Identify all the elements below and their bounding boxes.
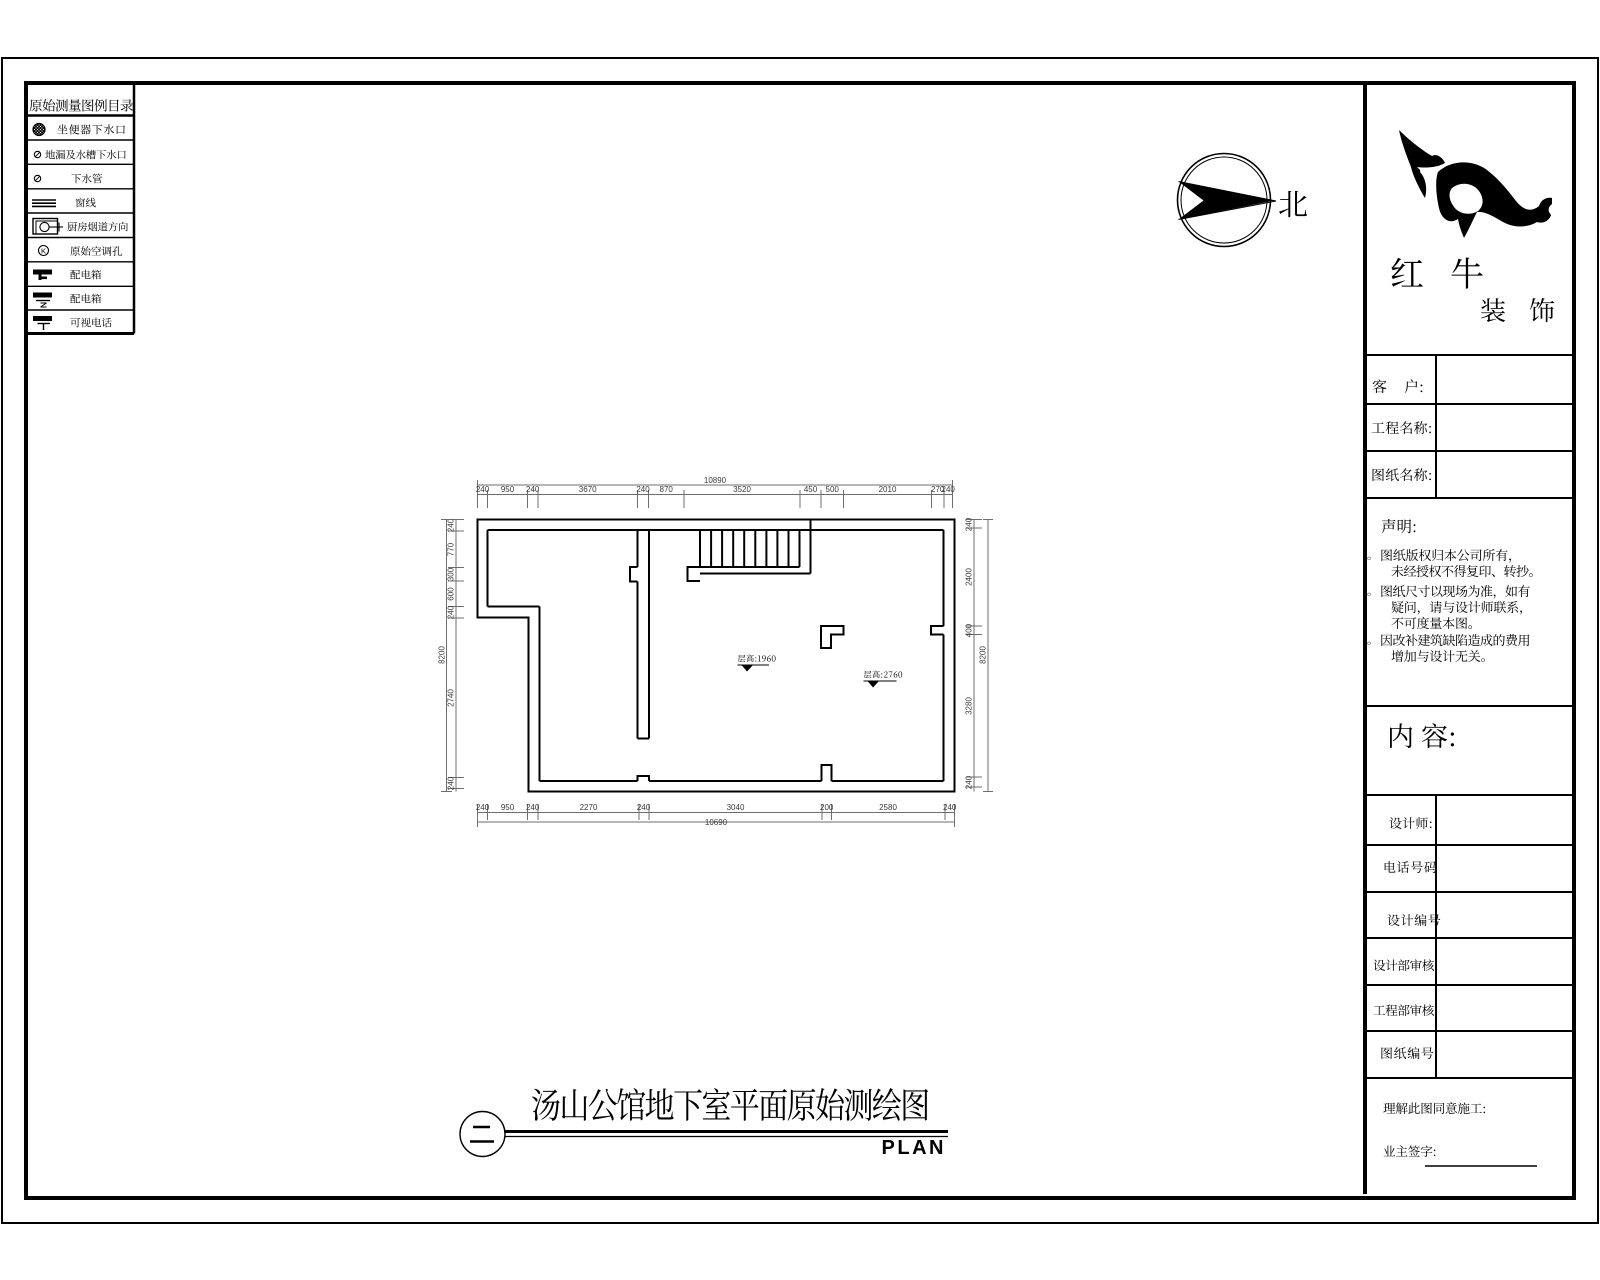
svg-text:500: 500 xyxy=(826,485,840,494)
svg-text:400: 400 xyxy=(965,623,974,637)
svg-text:240: 240 xyxy=(476,803,490,812)
svg-text:240: 240 xyxy=(943,803,957,812)
svg-text:240: 240 xyxy=(447,776,456,790)
svg-text:8200: 8200 xyxy=(979,646,988,664)
svg-text:240: 240 xyxy=(526,803,540,812)
svg-text:240: 240 xyxy=(965,517,974,531)
svg-text:3520: 3520 xyxy=(733,485,751,494)
svg-text:10690: 10690 xyxy=(705,818,728,827)
svg-text:3280: 3280 xyxy=(965,697,974,715)
svg-text:770: 770 xyxy=(447,542,456,556)
svg-text:950: 950 xyxy=(501,485,515,494)
svg-text:10890: 10890 xyxy=(704,476,727,485)
svg-text:300: 300 xyxy=(447,567,456,581)
svg-text:240: 240 xyxy=(636,485,650,494)
svg-text:870: 870 xyxy=(660,485,674,494)
svg-text:240: 240 xyxy=(447,605,456,619)
svg-text:240: 240 xyxy=(447,518,456,532)
svg-text:240: 240 xyxy=(942,485,956,494)
svg-text:240: 240 xyxy=(965,775,974,789)
svg-text:450: 450 xyxy=(804,485,818,494)
svg-text:2740: 2740 xyxy=(447,689,456,707)
svg-text:3040: 3040 xyxy=(727,803,745,812)
svg-text:K: K xyxy=(41,246,46,255)
svg-text:2270: 2270 xyxy=(580,803,598,812)
svg-text:950: 950 xyxy=(501,803,515,812)
svg-text:600: 600 xyxy=(447,587,456,601)
svg-text:240: 240 xyxy=(637,803,651,812)
svg-text:240: 240 xyxy=(526,485,540,494)
svg-text:3670: 3670 xyxy=(579,485,597,494)
svg-text:2010: 2010 xyxy=(879,485,897,494)
svg-text:240: 240 xyxy=(476,485,490,494)
svg-text:2580: 2580 xyxy=(879,803,897,812)
svg-text:PLAN: PLAN xyxy=(882,1137,946,1159)
svg-text:2400: 2400 xyxy=(965,568,974,586)
svg-text:8200: 8200 xyxy=(438,646,447,664)
svg-text:200: 200 xyxy=(820,803,834,812)
